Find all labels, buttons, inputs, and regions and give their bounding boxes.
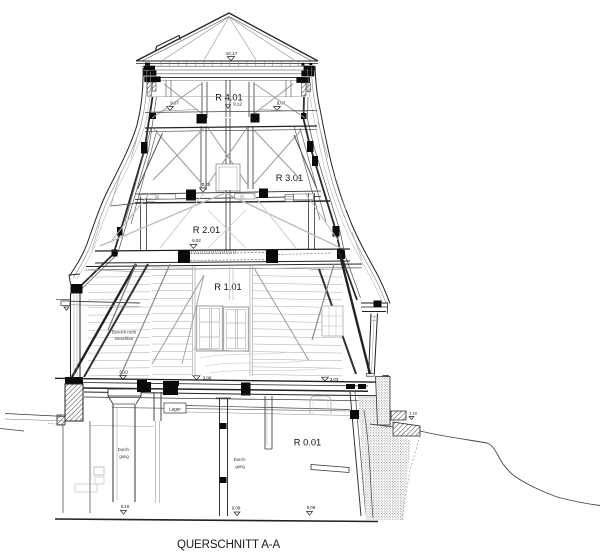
svg-text:Lager: Lager [169, 407, 181, 412]
svg-text:3,10: 3,10 [119, 370, 128, 375]
svg-text:Durch-: Durch- [118, 447, 131, 452]
svg-text:R 0.01: R 0.01 [294, 438, 321, 448]
svg-text:0,10: 0,10 [121, 504, 130, 509]
svg-text:6,02: 6,02 [192, 238, 201, 243]
svg-text:2,18: 2,18 [409, 411, 418, 416]
svg-text:0,09: 0,09 [232, 506, 241, 511]
svg-text:0,09: 0,09 [307, 505, 316, 510]
svg-text:QUERSCHNITT A-A: QUERSCHNITT A-A [177, 539, 281, 551]
svg-text:gang: gang [235, 464, 245, 469]
svg-text:einsehbar: einsehbar [115, 336, 134, 341]
svg-text:Bereich nicht: Bereich nicht [112, 330, 137, 335]
svg-text:R 1.01: R 1.01 [214, 282, 241, 292]
svg-text:9,12: 9,12 [233, 102, 242, 107]
svg-text:10,17: 10,17 [226, 51, 238, 56]
svg-text:R 2.01: R 2.01 [193, 225, 220, 235]
svg-text:gang: gang [119, 454, 129, 459]
svg-text:9,07: 9,07 [277, 101, 286, 106]
svg-text:Durch-: Durch- [234, 457, 247, 462]
svg-text:7,26: 7,26 [202, 182, 211, 187]
